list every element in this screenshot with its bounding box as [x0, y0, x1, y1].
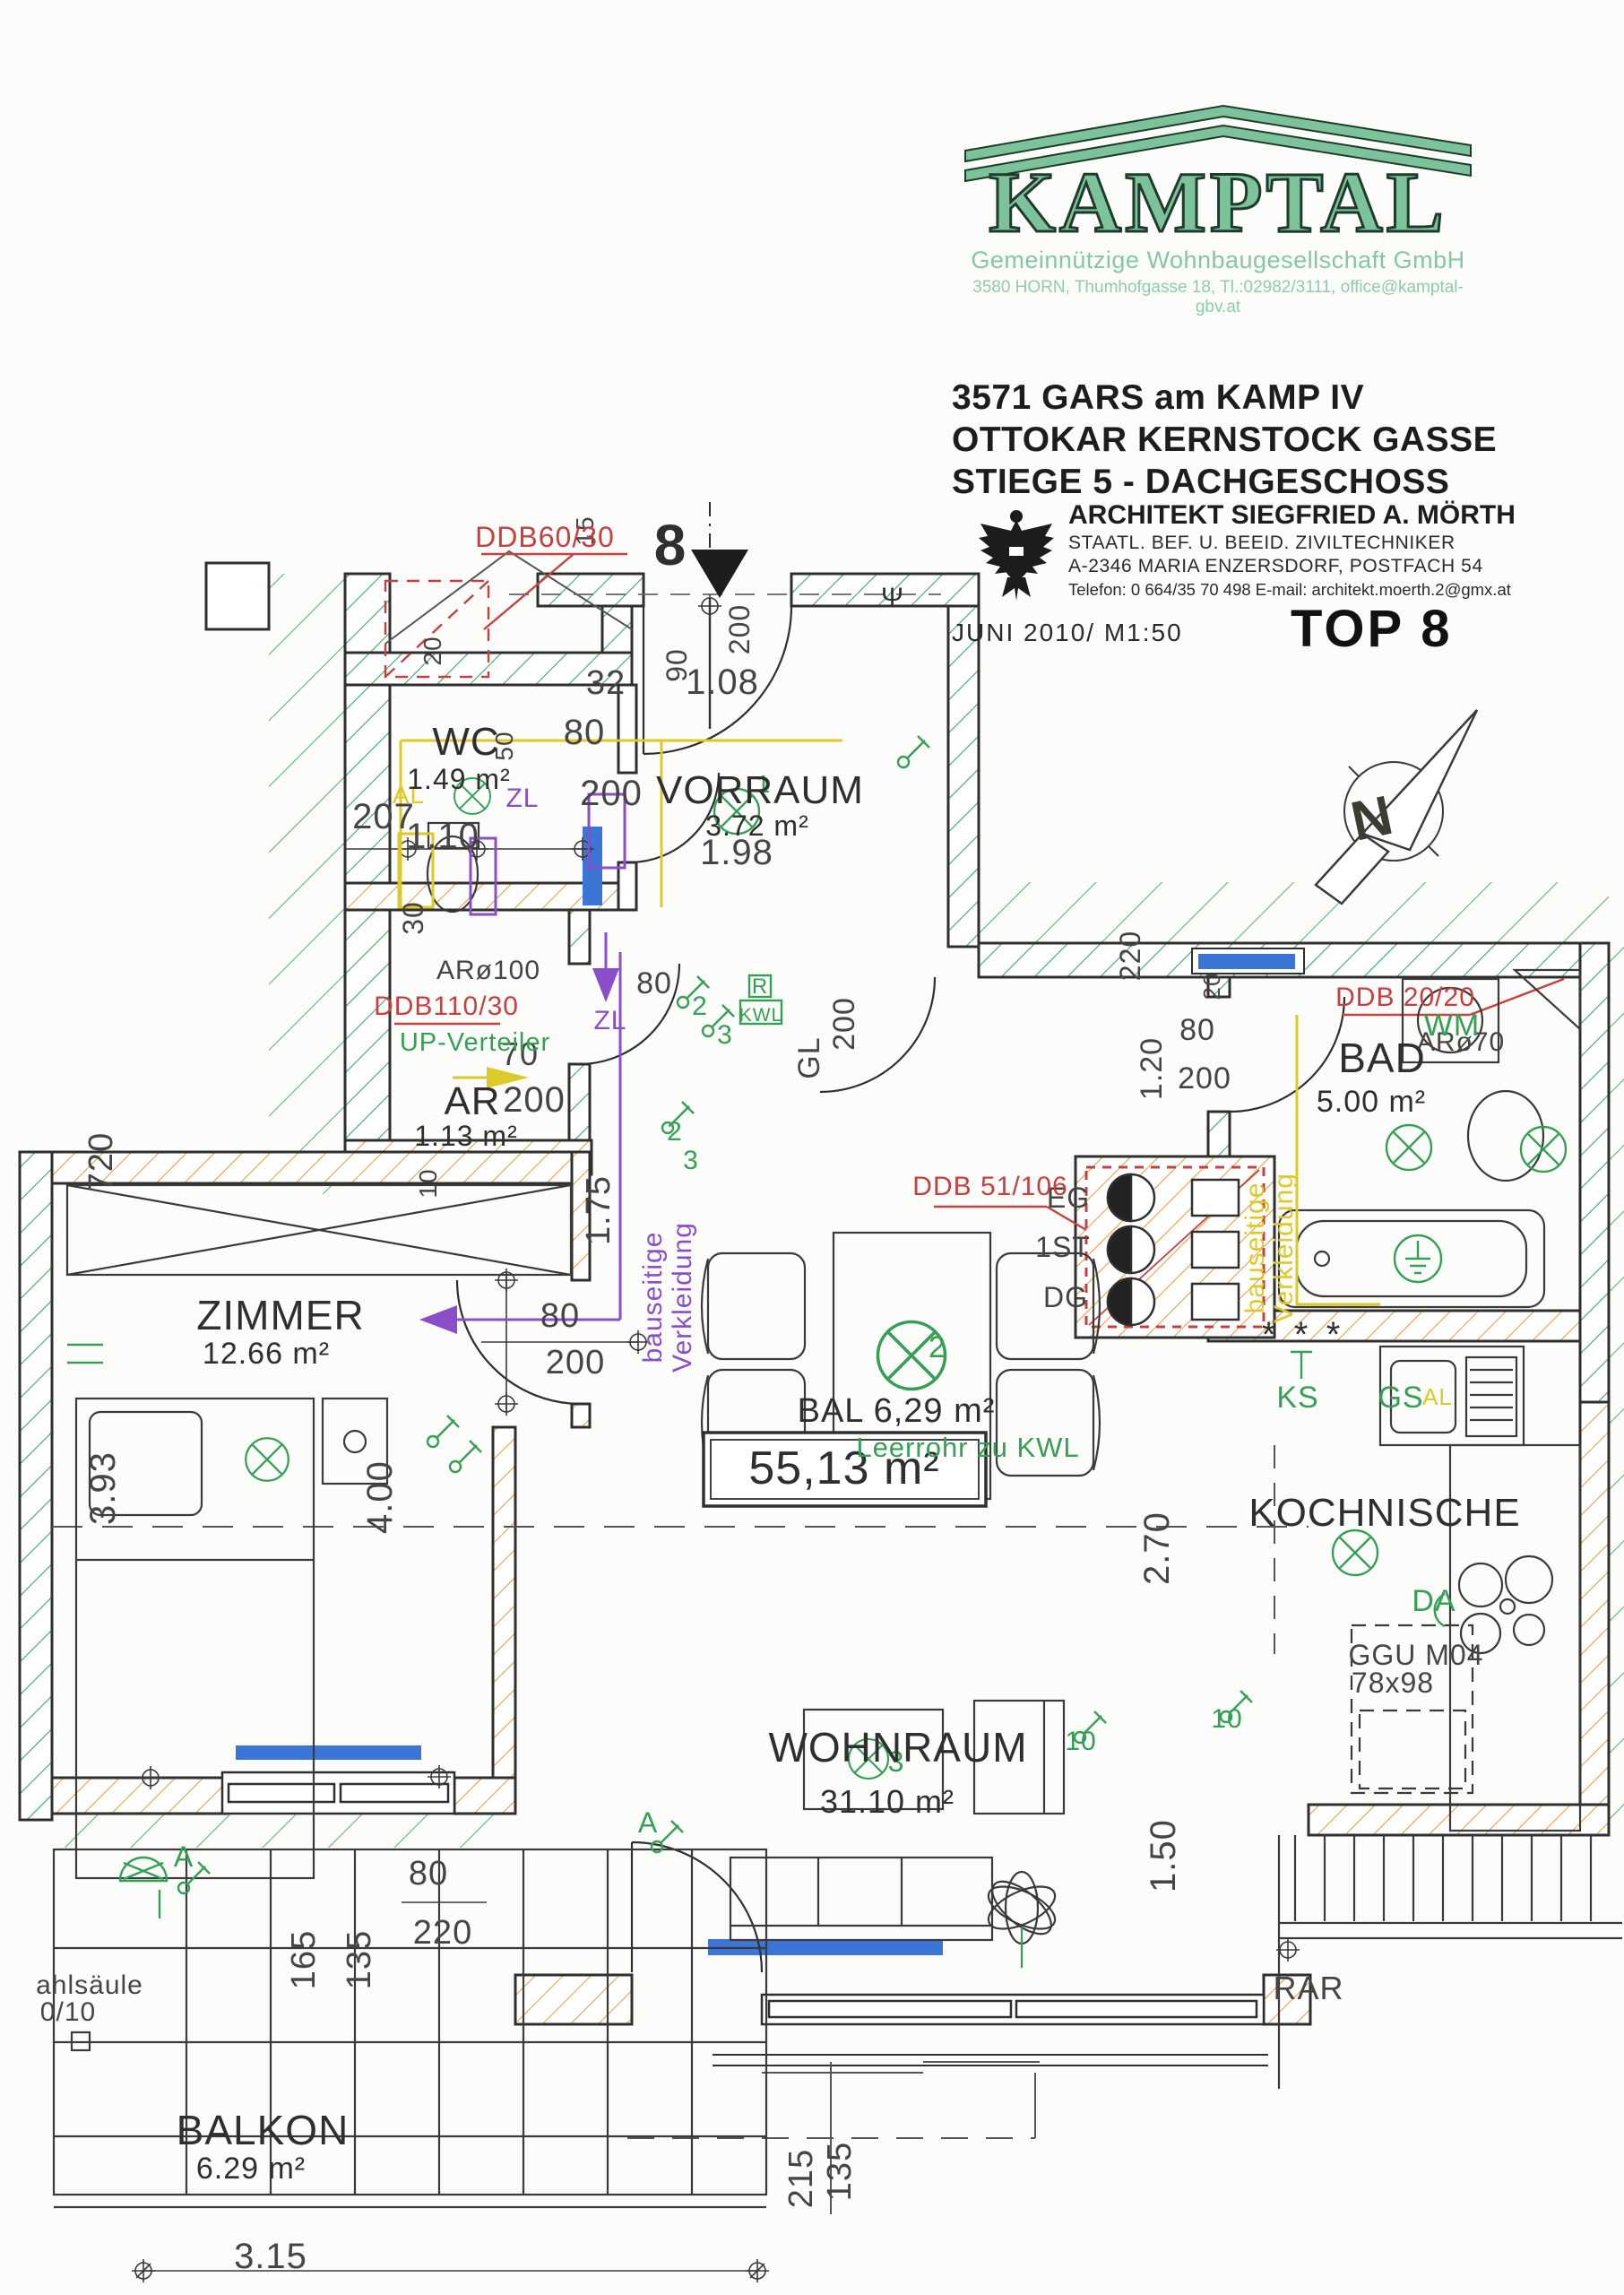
purple-arrow-left	[419, 1305, 457, 1334]
room-name-zimmer: ZIMMER	[196, 1292, 364, 1338]
plan-annotation: ARø100	[436, 956, 540, 985]
plan-annotation: 10	[1065, 1727, 1096, 1756]
north-compass: N	[1316, 710, 1477, 904]
plan-annotation: 3	[717, 1020, 733, 1050]
plan-annotation: 220	[1114, 931, 1146, 981]
company-address: 3580 HORN, Thumhofgasse 18, Tl.:02982/31…	[963, 278, 1473, 317]
washbasin	[1468, 1091, 1543, 1181]
plan-annotation: 1.75	[580, 1175, 618, 1245]
room-name-ar: AR	[444, 1079, 500, 1123]
company-logo-text: KAMPTAL	[963, 164, 1473, 241]
plan-annotation: 30	[397, 901, 429, 935]
lamp-bad	[1386, 1125, 1431, 1170]
balcony-area-note: BAL 6,29 m²	[798, 1392, 996, 1430]
project-line-1: 3571 GARS am KAMP IV	[952, 377, 1579, 419]
dimension-lines	[136, 849, 764, 2278]
plan-annotation: R	[752, 974, 768, 999]
plan-annotation: 3.93	[83, 1451, 123, 1525]
plan-annotation: DDB110/30	[374, 992, 519, 1021]
room-area-ar: 1.13 m²	[414, 1120, 517, 1152]
architect-contact: Telefon: 0 664/35 70 498 E-mail: archite…	[1068, 580, 1602, 600]
room-area-wc: 1.49 m²	[407, 763, 510, 795]
plan-annotation: 200	[827, 997, 861, 1051]
plan-annotation: 220	[413, 1914, 472, 1952]
room-area-zimmer: 12.66 m²	[203, 1337, 330, 1371]
plan-annotation: 200	[503, 1080, 566, 1120]
plan-annotation: 200	[723, 604, 756, 654]
company-subtitle: Gemeinnützige Wohnbaugesellschaft GmbH	[963, 247, 1473, 274]
plan-annotation: 80	[564, 713, 606, 752]
plan-annotation: 1.20	[1135, 1037, 1169, 1100]
plan-annotation: 2.70	[1137, 1511, 1177, 1585]
plan-annotation: 165	[285, 1930, 323, 1989]
grounding-symbol	[1395, 1235, 1441, 1282]
project-title-block: 3571 GARS am KAMP IV OTTOKAR KERNSTOCK G…	[952, 377, 1579, 503]
plan-annotation: Verkleidung	[1269, 1173, 1299, 1323]
plant	[982, 1872, 1061, 1968]
plan-annotation: DDB 51/106	[912, 1172, 1067, 1201]
eagle-emblem-icon	[975, 504, 1058, 604]
room-name-wohnraum: WOHNRAUM	[768, 1724, 1027, 1771]
plan-annotation: 4.00	[360, 1460, 400, 1534]
purple-arrow-down	[592, 968, 619, 1002]
plan-annotation: DG	[1043, 1281, 1088, 1313]
project-line-2: OTTOKAR KERNSTOCK GASSE	[952, 419, 1579, 461]
plan-annotation: 200	[580, 774, 643, 813]
plan-annotation: ZL	[593, 1006, 626, 1035]
room-name-wc: WC	[432, 720, 499, 764]
plan-annotation: A	[174, 1840, 194, 1873]
architect-address: A-2346 MARIA ENZERSDORF, POSTFACH 54	[1068, 556, 1602, 577]
architect-block: ARCHITEKT SIEGFRIED A. MÖRTH STAATL. BEF…	[975, 500, 1602, 600]
room-name-kochnische: KOCHNISCHE	[1248, 1491, 1520, 1535]
plan-annotation: 135	[821, 2142, 859, 2201]
balcony	[54, 1849, 766, 2207]
architect-name: ARCHITEKT SIEGFRIED A. MÖRTH	[1068, 500, 1602, 531]
plan-annotation: Ψ	[881, 583, 904, 612]
project-line-3: STIEGE 5 - DACHGESCHOSS	[952, 461, 1579, 503]
plan-annotation: GL	[792, 1036, 826, 1078]
plan-annotation: 90	[661, 648, 693, 682]
plan-annotation: 80	[636, 966, 672, 1000]
plan-annotation: KS	[1276, 1381, 1318, 1415]
room-area-vorraum: 3.72 m²	[705, 810, 808, 842]
plan-annotation: 80	[409, 1855, 448, 1892]
plan-annotation: 20	[1198, 973, 1225, 1000]
plan-annotation: 20	[419, 636, 446, 665]
plan-annotation: 32	[586, 664, 626, 702]
floor-plan-drawing: N 55,13 m² BAL 6,29 m² 8151.089020032802…	[0, 0, 1624, 2295]
plan-annotation: 10	[414, 1168, 442, 1198]
room-area-balkon: 6.29 m²	[196, 2152, 306, 2186]
room-name-bad: BAD	[1338, 1035, 1426, 1081]
floor-plan-sheet: N 55,13 m² BAL 6,29 m² 8151.089020032802…	[0, 0, 1624, 2295]
plan-annotation: 135	[341, 1930, 378, 1989]
plan-annotation: 1.10	[406, 817, 479, 856]
plan-annotation: RAR	[1273, 1970, 1343, 2006]
plan-annotation: DA	[1412, 1584, 1456, 1618]
plan-annotation: 1.50	[1144, 1819, 1183, 1892]
plan-annotation: bauseitige	[1240, 1182, 1270, 1314]
plan-annotation: AL	[1422, 1383, 1453, 1410]
plan-annotation: *	[1326, 1315, 1342, 1355]
lamp-zimmer	[246, 1438, 289, 1481]
plan-annotation: Verkleidung	[668, 1222, 697, 1373]
company-logo-block: KAMPTAL Gemeinnützige Wohnbaugesellschaf…	[963, 100, 1473, 317]
plan-annotation: 720	[82, 1132, 120, 1191]
plan-annotation: 80	[540, 1297, 580, 1335]
plan-annotation: bauseitige	[638, 1232, 668, 1364]
plan-annotation: 8	[654, 513, 687, 577]
plan-annotation: 1ST	[1035, 1231, 1091, 1263]
plan-annotation: 2	[692, 992, 708, 1021]
unit-label: TOP 8	[1291, 599, 1453, 659]
plan-annotation: 3	[683, 1146, 699, 1175]
stairs	[1279, 1835, 1622, 2089]
corner-shelf	[1515, 970, 1580, 1029]
plan-annotation: KWL	[739, 1005, 783, 1026]
plan-annotation: UP-Verteiler	[400, 1028, 550, 1057]
plan-annotation: 1.08	[686, 663, 759, 702]
plan-annotation: Leerrohr zu KWL	[856, 1432, 1079, 1463]
plan-annotation: WM	[1424, 1009, 1480, 1043]
plan-annotation: 2	[667, 1117, 683, 1147]
plan-annotation: 80	[1179, 1013, 1215, 1047]
plan-annotation: 3.15	[234, 2237, 307, 2276]
plan-annotation: A	[638, 1806, 658, 1839]
room-name-vorraum: VORRAUM	[656, 768, 864, 812]
plan-annotation: 2	[929, 1330, 946, 1364]
window-sill-zimmer	[236, 1745, 421, 1760]
plan-annotation: 78x98	[1352, 1667, 1434, 1699]
plan-annotation: 200	[546, 1344, 605, 1381]
plan-annotation: 0/10	[40, 1997, 96, 2027]
sofa	[730, 1858, 992, 1940]
plan-annotation: 215	[782, 2149, 820, 2208]
architect-role: STAATL. BEF. U. BEEID. ZIVILTECHNIKER	[1068, 533, 1602, 554]
room-area-wohnraum: 31.10 m²	[820, 1783, 955, 1820]
plan-annotation: ahlsäule	[36, 1970, 143, 2000]
section-marker-triangle	[691, 550, 748, 598]
plan-annotation: ZL	[505, 784, 539, 813]
date-and-scale: JUNI 2010/ M1:50	[952, 619, 1183, 647]
plan-annotation: 10	[1211, 1704, 1242, 1734]
plan-annotation: 200	[1178, 1061, 1231, 1096]
window-sill-bad	[1198, 954, 1295, 969]
window-sill-vorraum	[583, 827, 602, 905]
room-area-bad: 5.00 m²	[1317, 1085, 1426, 1119]
room-name-balkon: BALKON	[177, 2107, 350, 2153]
plan-annotation: GS	[1378, 1381, 1423, 1415]
plan-annotation: DDB60/30	[475, 521, 615, 553]
lamp-kochnische	[1333, 1530, 1378, 1575]
